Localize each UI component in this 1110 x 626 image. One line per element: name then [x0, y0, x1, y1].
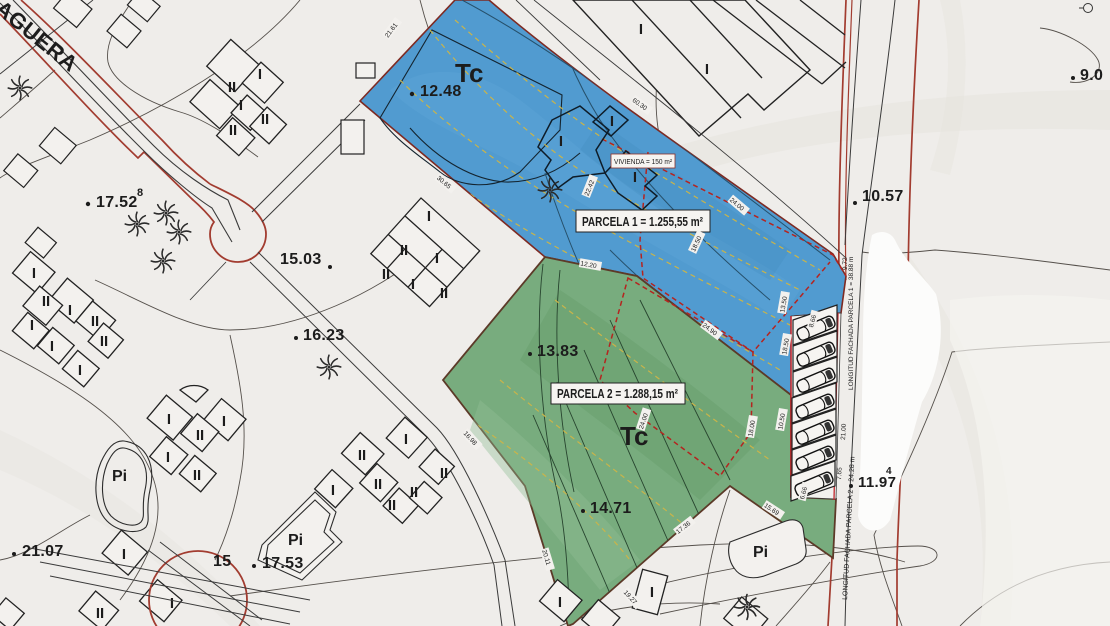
svg-text:I: I	[435, 250, 439, 267]
svg-text:14.71: 14.71	[590, 500, 632, 517]
svg-text:II: II	[388, 497, 396, 514]
svg-text:II: II	[196, 427, 204, 444]
svg-text:II: II	[96, 605, 104, 622]
svg-text:II: II	[228, 79, 236, 96]
svg-text:LONGITUD FACHADA PARCELA 1 = 3: LONGITUD FACHADA PARCELA 1 = 38.88 m	[848, 257, 855, 390]
svg-text:17.53: 17.53	[262, 555, 304, 572]
svg-text:I: I	[78, 362, 82, 379]
svg-text:15.03: 15.03	[280, 251, 322, 268]
svg-text:I: I	[32, 265, 36, 282]
svg-text:I: I	[50, 338, 54, 355]
svg-text:13.83: 13.83	[537, 343, 579, 360]
svg-text:Pi: Pi	[288, 532, 303, 549]
svg-text:II: II	[229, 122, 237, 139]
svg-text:II: II	[42, 293, 50, 310]
svg-text:Pi: Pi	[112, 468, 127, 485]
svg-text:I: I	[558, 594, 562, 611]
svg-text:I: I	[122, 546, 126, 563]
svg-text:PARCELA 1 = 1.255,55 m²: PARCELA 1 = 1.255,55 m²	[582, 215, 703, 229]
svg-text:I: I	[167, 411, 171, 428]
svg-text:I: I	[633, 169, 637, 186]
svg-text:I: I	[166, 449, 170, 466]
svg-text:II: II	[358, 447, 366, 464]
svg-text:I: I	[559, 133, 563, 150]
svg-text:II: II	[440, 285, 448, 302]
svg-text:21.00: 21.00	[840, 423, 848, 440]
svg-text:II: II	[374, 476, 382, 493]
svg-text:I: I	[639, 21, 643, 38]
svg-text:II: II	[100, 333, 108, 350]
svg-text:I: I	[411, 276, 415, 293]
svg-text:17.52: 17.52	[96, 194, 138, 211]
svg-text:9.72: 9.72	[842, 257, 849, 270]
svg-text:I: I	[404, 431, 408, 448]
svg-text:I: I	[222, 413, 226, 430]
svg-text:PARCELA 2 = 1.288,15 m²: PARCELA 2 = 1.288,15 m²	[557, 387, 678, 401]
svg-text:10.57: 10.57	[862, 188, 904, 205]
svg-text:I: I	[258, 66, 262, 83]
svg-text:II: II	[400, 242, 408, 259]
svg-text:II: II	[440, 465, 448, 482]
svg-text:I: I	[705, 61, 709, 78]
svg-text:I: I	[331, 482, 335, 499]
svg-text:II: II	[91, 313, 99, 330]
svg-text:Tc: Tc	[455, 58, 483, 88]
svg-text:I: I	[610, 113, 614, 130]
svg-text:II: II	[382, 266, 390, 283]
svg-text:I: I	[170, 595, 174, 612]
svg-text:I: I	[650, 584, 654, 601]
svg-text:VIVIENDA = 150 m²: VIVIENDA = 150 m²	[614, 159, 673, 166]
svg-text:4: 4	[886, 466, 892, 477]
svg-text:16.23: 16.23	[303, 327, 345, 344]
svg-text:Pi: Pi	[753, 544, 768, 561]
svg-text:I: I	[427, 208, 431, 225]
svg-text:15: 15	[213, 553, 231, 570]
svg-text:8: 8	[137, 187, 143, 199]
svg-text:I: I	[239, 97, 243, 114]
svg-text:9.0: 9.0	[1080, 67, 1103, 84]
svg-text:II: II	[410, 484, 418, 501]
svg-text:II: II	[261, 111, 269, 128]
svg-text:21.07: 21.07	[22, 543, 64, 560]
svg-text:I: I	[30, 317, 34, 334]
svg-text:I: I	[68, 302, 72, 319]
svg-text:7.65: 7.65	[836, 467, 844, 480]
svg-text:II: II	[193, 467, 201, 484]
